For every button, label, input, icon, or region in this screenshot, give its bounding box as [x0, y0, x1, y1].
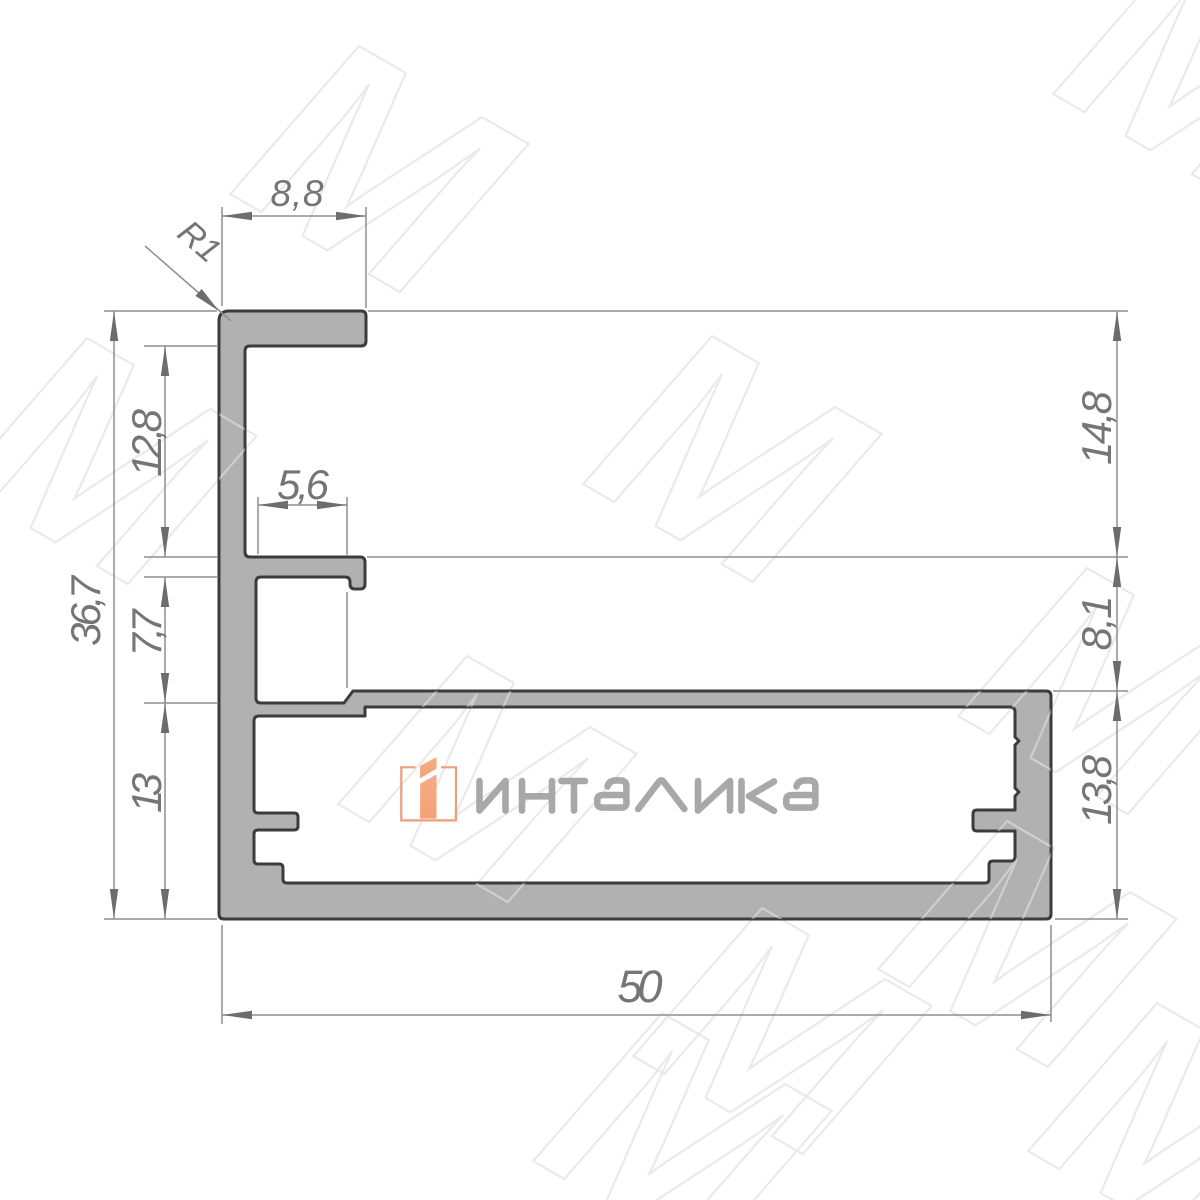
svg-text:50: 50 [618, 961, 663, 1012]
svg-text:13: 13 [123, 773, 170, 813]
svg-text:36,7: 36,7 [62, 574, 109, 646]
svg-text:7,7: 7,7 [123, 608, 170, 657]
svg-text:12,8: 12,8 [123, 408, 170, 477]
svg-text:8,1: 8,1 [1073, 596, 1120, 651]
svg-text:14,8: 14,8 [1073, 390, 1120, 465]
svg-text:13,8: 13,8 [1073, 754, 1120, 825]
svg-text:5,6: 5,6 [277, 461, 330, 508]
svg-text:8,8: 8,8 [271, 173, 324, 214]
